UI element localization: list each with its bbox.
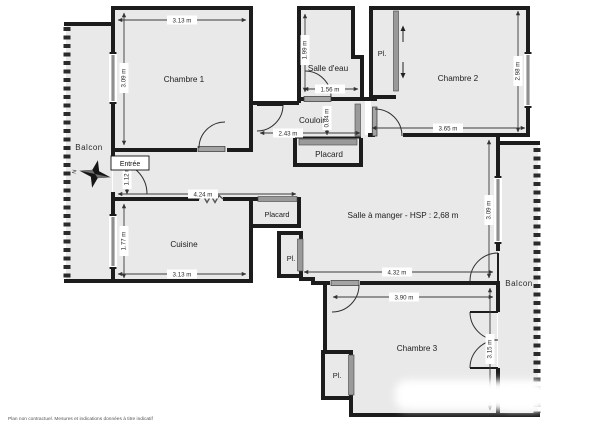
floor-fills [66,8,538,415]
chambre2-window [524,52,532,108]
pl-sam-label: Pl. [287,254,296,263]
pl-sam-slide [298,239,304,271]
cuisine-label: Cuisine [170,240,198,249]
dim-salle-eau-height: 1.99 m [302,41,309,60]
dim-salle-eau-width: 1.56 m [321,87,340,94]
entree-label: Entrée [120,161,140,168]
balcon-left-label: Balcon [75,143,102,152]
salle-eau-label: Salle d'eau [308,64,349,73]
dim-cuisine-width: 3.13 m [173,272,192,279]
dim-couloir-width: 2.43 m [279,131,298,138]
dim-cuisine-height: 1.77 m [121,232,128,251]
floor-plan: 3.13 m 3.09 m 1.99 m 1.56 m 2.43 m 0.84 … [0,0,609,430]
placard-left-label: Placard [264,210,289,219]
pl-chambre2-label: Pl. [378,49,387,58]
dim-chambre3-width: 3.90 m [395,295,414,302]
pl-chambre2-slide [394,11,399,91]
salle-a-manger-window [494,176,502,244]
couloir-label: Couloir [299,116,325,125]
dim-chambre1-height: 3.09 m [121,69,128,88]
chambre1-window [109,52,117,104]
pl-chambre3-label: Pl. [333,371,342,380]
pl-chambre3-slide [349,355,355,395]
placard-left-slide [258,197,297,202]
balcon-right-label: Balcon [505,279,532,288]
salle-a-manger-label: Salle à manger - HSP : 2,68 m [348,211,459,220]
couloir-east-slide [355,104,361,136]
chambre1-label: Chambre 1 [164,75,205,84]
balcony-left-floor [66,24,112,281]
placard-mid-label: Placard [315,150,343,159]
dim-degagement-width: 4.24 m [194,192,213,199]
dim-sam-height: 3.09 m [486,201,493,220]
watermark-blobs [395,380,547,410]
entree-label-box: Entrée [111,156,149,170]
chambre3-label: Chambre 3 [397,344,438,353]
chambre2-label: Chambre 2 [438,74,479,83]
disclaimer-text: Plan non contractuel. Mesures et indicat… [8,416,153,422]
placard-mid-slide [299,139,357,145]
dim-chambre3-height: 3.15 m [487,340,494,359]
cuisine-window [109,214,117,269]
dim-chambre1-width: 3.13 m [173,18,192,25]
dim-chambre2-height: 2.98 m [515,62,522,81]
dim-sam-width: 4.32 m [388,270,407,277]
dim-chambre2-width: 3.65 m [439,126,458,133]
floor-plan-svg: 3.13 m 3.09 m 1.99 m 1.56 m 2.43 m 0.84 … [0,0,609,430]
